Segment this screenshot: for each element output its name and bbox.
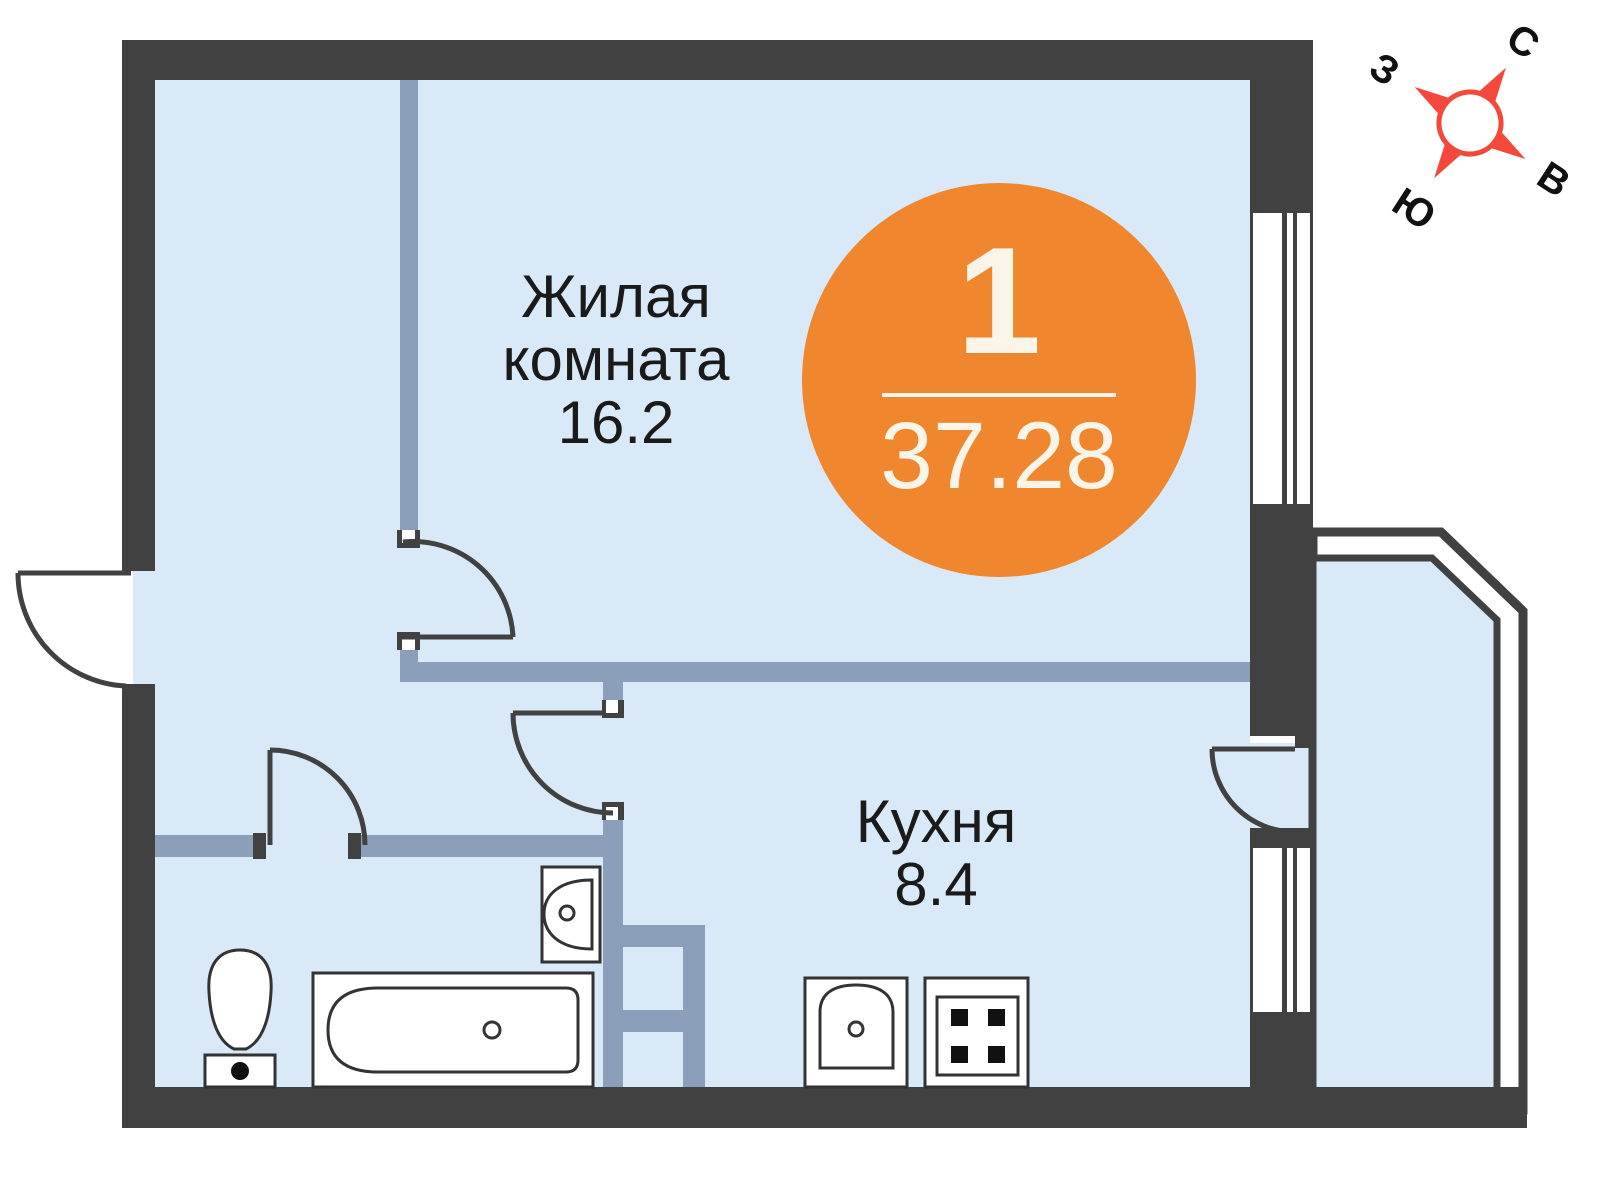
bathroom-door	[270, 750, 365, 845]
kitchen-sink	[805, 978, 907, 1087]
toilet	[205, 950, 275, 1087]
entry-door	[18, 573, 131, 686]
kitchen-name: Кухня	[786, 790, 1086, 853]
compass-rose: С В Ю З	[1307, 0, 1600, 291]
unit-badge: 1 37.28	[802, 183, 1196, 577]
living-room-name-line1: Жилая	[416, 265, 816, 328]
compass-label-north: С	[1499, 15, 1547, 68]
unit-total-area: 37.28	[880, 409, 1118, 504]
symbols-layer: С В Ю З	[0, 0, 1600, 1200]
floorplan: С В Ю З Жилая комната 16.2 Кухня 8.4 1 3…	[0, 0, 1600, 1200]
compass-label-east: В	[1530, 153, 1578, 206]
compass-label-west: З	[1362, 44, 1407, 95]
living-room-area: 16.2	[416, 391, 816, 454]
living-room-door	[400, 541, 513, 637]
bathroom-sink	[542, 867, 600, 962]
bathtub	[313, 973, 593, 1087]
compass-ring	[1427, 80, 1513, 166]
kitchen-label: Кухня 8.4	[786, 790, 1086, 916]
kitchen-door	[513, 713, 613, 813]
kitchen-area: 8.4	[786, 853, 1086, 916]
balcony-door	[1212, 749, 1295, 832]
living-room-label: Жилая комната 16.2	[416, 265, 816, 454]
stove	[925, 978, 1028, 1087]
compass-label-south: Ю	[1385, 180, 1444, 239]
living-room-name-line2: комната	[416, 328, 816, 391]
unit-room-count: 1	[957, 225, 1042, 377]
badge-divider	[882, 393, 1116, 397]
